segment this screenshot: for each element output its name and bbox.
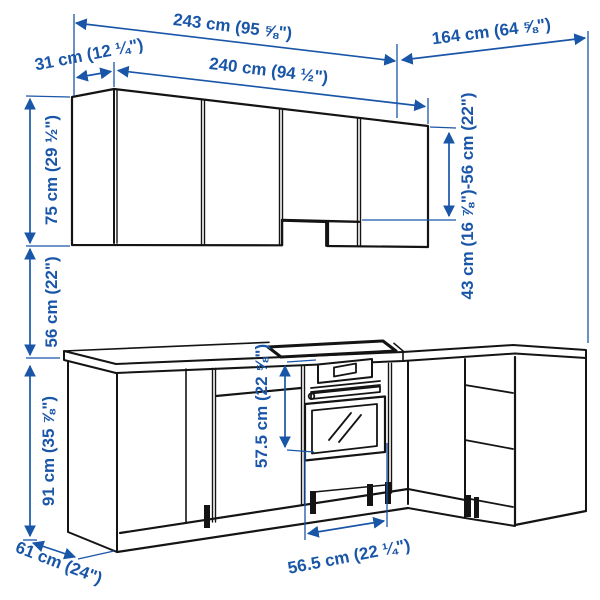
dim-label-base-height: 91 cm (35 ⅞"): [39, 396, 58, 506]
wall-cabinets-drawing: [72, 89, 428, 247]
dim-line-right-run: [402, 38, 585, 60]
dim-line-wall-side-depth: [77, 72, 111, 78]
cabinet-leg: [204, 505, 210, 528]
dim-label-backsplash-height: 56 cm (22"): [42, 256, 61, 347]
cabinet-leg: [310, 491, 316, 514]
cabinet-leg: [474, 497, 479, 518]
cabinet-leg: [385, 482, 391, 504]
dim-label-wall-cabinet-height: 75 cm (29 ½"): [42, 115, 61, 225]
dim-line-oven-width: [308, 521, 384, 534]
cabinet-leg: [466, 495, 471, 517]
dim-label-wall-front-width: 240 cm (94 ½"): [208, 54, 329, 87]
oven-glass: [312, 404, 377, 454]
dim-label-total-width: 243 cm (95 ⅝"): [172, 10, 293, 43]
oven-door: [305, 397, 385, 461]
dim-label-oven-width: 56.5 cm (22 ¼"): [286, 535, 412, 577]
cabinet-leg: [367, 484, 373, 506]
dim-label-wall-right-height: 43 cm (16 ⅞")-56 cm (22"): [458, 93, 477, 300]
oven-drawing: [305, 359, 385, 461]
dim-label-right-run: 164 cm (64 ⅝"): [431, 15, 552, 49]
kitchen-dimension-diagram: 243 cm (95 ⅝") 164 cm (64 ⅝") 31 cm (12 …: [0, 0, 600, 600]
corner-wing-drawing: [408, 357, 586, 526]
dim-label-wall-side-depth: 31 cm (12 ¼"): [33, 35, 145, 75]
dim-label-counter-depth: 61 cm (24"): [13, 538, 105, 588]
diagram-canvas: 243 cm (95 ⅝") 164 cm (64 ⅝") 31 cm (12 …: [0, 0, 600, 600]
dim-label-oven-height: 57.5 cm (22 ⅝"): [252, 344, 271, 468]
